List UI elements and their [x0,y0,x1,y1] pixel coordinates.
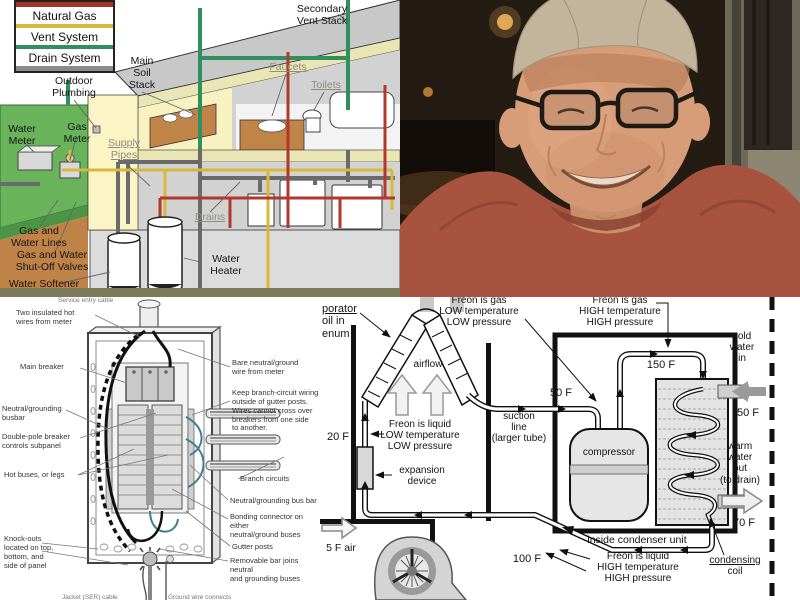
label-gas-and-water-lines: Gas and Water Lines [6,226,72,250]
compressor-tank [570,429,648,521]
photo-panel [400,0,800,297]
label-main-breaker: Main breaker [20,363,80,372]
label-evaporator-clipped: porator oil in enum [322,303,380,340]
label-airflow: airflow [398,359,458,370]
main-breaker [126,367,174,401]
label-temp-100f: 100 F [504,553,550,565]
label-gas-and-water-valves: Gas and Water Shut-Off Valves [10,250,94,274]
legend-vent-system: Vent System [16,28,113,45]
label-double-pole-breaker: Double-pole breaker controls subpanel [2,433,82,451]
label-warm-water-out: warm water out (to drain) [710,441,770,486]
label-toilets: Toilets [302,80,350,92]
bus-strip-right [188,409,194,509]
label-outdoor-plumbing: Outdoor Plumbing [28,76,120,100]
breaker-columns [118,405,182,509]
label-bare-neutral-ground: Bare neutral/ground wire from meter [232,359,316,377]
label-water-softener: Water Softener [4,279,84,291]
label-keep-branch-circuit: Keep branch-circuit wiring outside of gu… [232,389,320,433]
photo-man-cap-glasses [400,0,800,297]
label-neutral-grounding-bus-bar: Neutral/grounding bus bar [230,497,320,506]
label-expansion-device: expansion device [386,465,458,487]
label-bonding-connector: Bonding connector on either neutral/grou… [230,513,320,540]
label-water-heater: Water Heater [202,254,250,278]
label-condensing-line2: coil [698,566,772,577]
label-faucets: Faucets [262,62,314,74]
label-air-in: 5 F air [320,543,362,555]
label-compressor: compressor [570,447,648,458]
label-temp-70f: 70 F [724,517,764,529]
legend-natural-gas: Natural Gas [16,7,113,24]
label-temp-50f-cold: 50 F [728,407,768,419]
label-neutral-grounding-busbar: Neutral/grounding busbar [2,405,72,423]
plumbing-legend: Natural Gas Vent System Drain System [14,0,115,73]
collage-home-systems: Natural Gas Vent System Drain System Out… [0,0,800,600]
label-supply-pipes: Supply Pipes [100,138,148,162]
label-drains: Drains [188,212,232,224]
label-cold-water-in: cold water in [714,331,770,365]
label-evaporator-clip-line1: porator [322,303,380,315]
label-jacket-cable-clipped: Jacket (SER) cable [62,594,142,600]
label-knockouts: Knock-outs located on top, bottom, and s… [4,535,68,570]
label-temp-150f: 150 F [636,359,686,371]
label-condensing-coil: condensing coil [698,555,772,577]
label-gas-meter: Gas Meter [56,122,98,146]
legend-drain-system: Drain System [16,49,113,66]
legend-strip-drain [16,66,113,71]
label-two-insulated-hot-wires: Two insulated hot wires from meter [16,309,96,327]
label-temp-20f: 20 F [322,431,354,443]
label-hot-buses: Hot buses, or legs [4,471,80,480]
label-water-meter: Water Meter [0,124,44,148]
label-inside-condenser-unit: inside condenser unit [562,535,712,547]
water-softener-tank [108,233,140,292]
hvac-diagram-panel: porator oil in enum Freon is gas LOW tem… [320,297,800,600]
electrical-panel-diagram: Service entry cable Two insulated hot wi… [0,297,320,600]
label-evaporator-clip-line3: enum [322,328,380,340]
label-ground-wire-clipped: Ground wire connects [168,594,258,600]
label-freon-liquid-low: Freon is liquid LOW temperature LOW pres… [374,419,466,453]
label-freon-liquid-high: Freon is liquid HIGH temperature HIGH pr… [582,551,694,585]
water-heater-tank [148,217,182,290]
label-main-soil-stack: Main Soil Stack [118,56,166,91]
plumbing-diagram-panel: Natural Gas Vent System Drain System Out… [0,0,400,297]
label-evaporator-clip-line2: oil in [322,315,380,327]
label-suction-line: suction line (larger tube) [484,411,554,445]
label-service-entry-cable: Service entry cable [58,297,158,304]
label-removable-bar: Removable bar joins neutral and groundin… [230,557,320,584]
label-branch-circuits: Branch circuits [240,475,312,484]
label-freon-gas-high: Freon is gas HIGH temperature HIGH press… [558,297,682,329]
label-condensing-line1: condensing [698,555,772,566]
label-freon-gas-low: Freon is gas LOW temperature LOW pressur… [416,297,542,329]
label-gutter-posts: Gutter posts [232,543,292,552]
label-temp-50f-suction: 50 F [542,387,580,399]
label-secondary-vent-stack: Secondary Vent Stack [282,4,362,28]
